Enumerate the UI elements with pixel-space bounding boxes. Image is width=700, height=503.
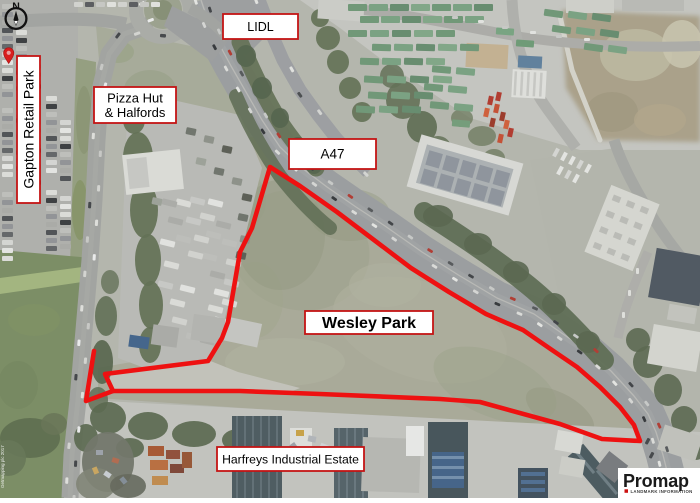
svg-text:Getmapping plc 2017: Getmapping plc 2017: [0, 445, 5, 488]
svg-text:A47: A47: [320, 147, 344, 162]
svg-text:Wesley Park: Wesley Park: [322, 315, 416, 332]
svg-text:LIDL: LIDL: [247, 20, 273, 34]
svg-text:Gapton Retail Park: Gapton Retail Park: [21, 69, 37, 188]
svg-text:& Halfords: & Halfords: [105, 105, 166, 120]
svg-text:N: N: [12, 1, 20, 13]
svg-text:LANDMARK INFORMATION: LANDMARK INFORMATION: [631, 489, 693, 494]
svg-text:Pizza Hut: Pizza Hut: [107, 90, 163, 105]
svg-text:Harfreys Industrial Estate: Harfreys Industrial Estate: [222, 452, 359, 466]
